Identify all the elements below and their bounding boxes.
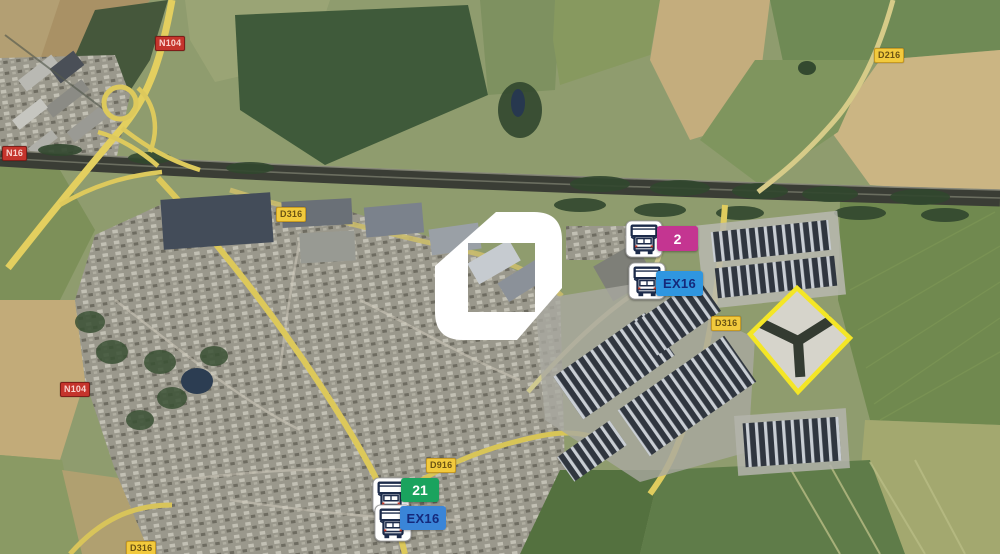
road-badge-d316-center: D316 [276,207,306,222]
road-badge-d216-northeast: D216 [874,48,904,63]
road-badge-d316-southwest: D316 [126,541,156,554]
road-badge-n104-north: N104 [155,36,185,51]
road-badge-n104-southwest: N104 [60,382,90,397]
map-canvas[interactable]: N104 N16 N104 D316 D216 D316 D916 D316 2 [0,0,1000,554]
exit-number-badge[interactable]: 21 [401,478,439,502]
exit-number-badge[interactable]: 2 [657,226,698,251]
exit-name-badge[interactable]: EX16 [656,271,703,296]
road-badge-d316-east: D316 [711,316,741,331]
road-badge-n16-west: N16 [2,146,27,161]
truck-marker-exit-2[interactable]: 2 [625,220,700,260]
truck-marker-ex16-north[interactable]: EX16 [628,262,708,302]
satellite-imagery [0,0,1000,554]
truck-marker-ex16-south[interactable]: EX16 [374,504,454,544]
road-badge-d916-south: D916 [426,458,456,473]
exit-name-badge[interactable]: EX16 [400,506,446,530]
